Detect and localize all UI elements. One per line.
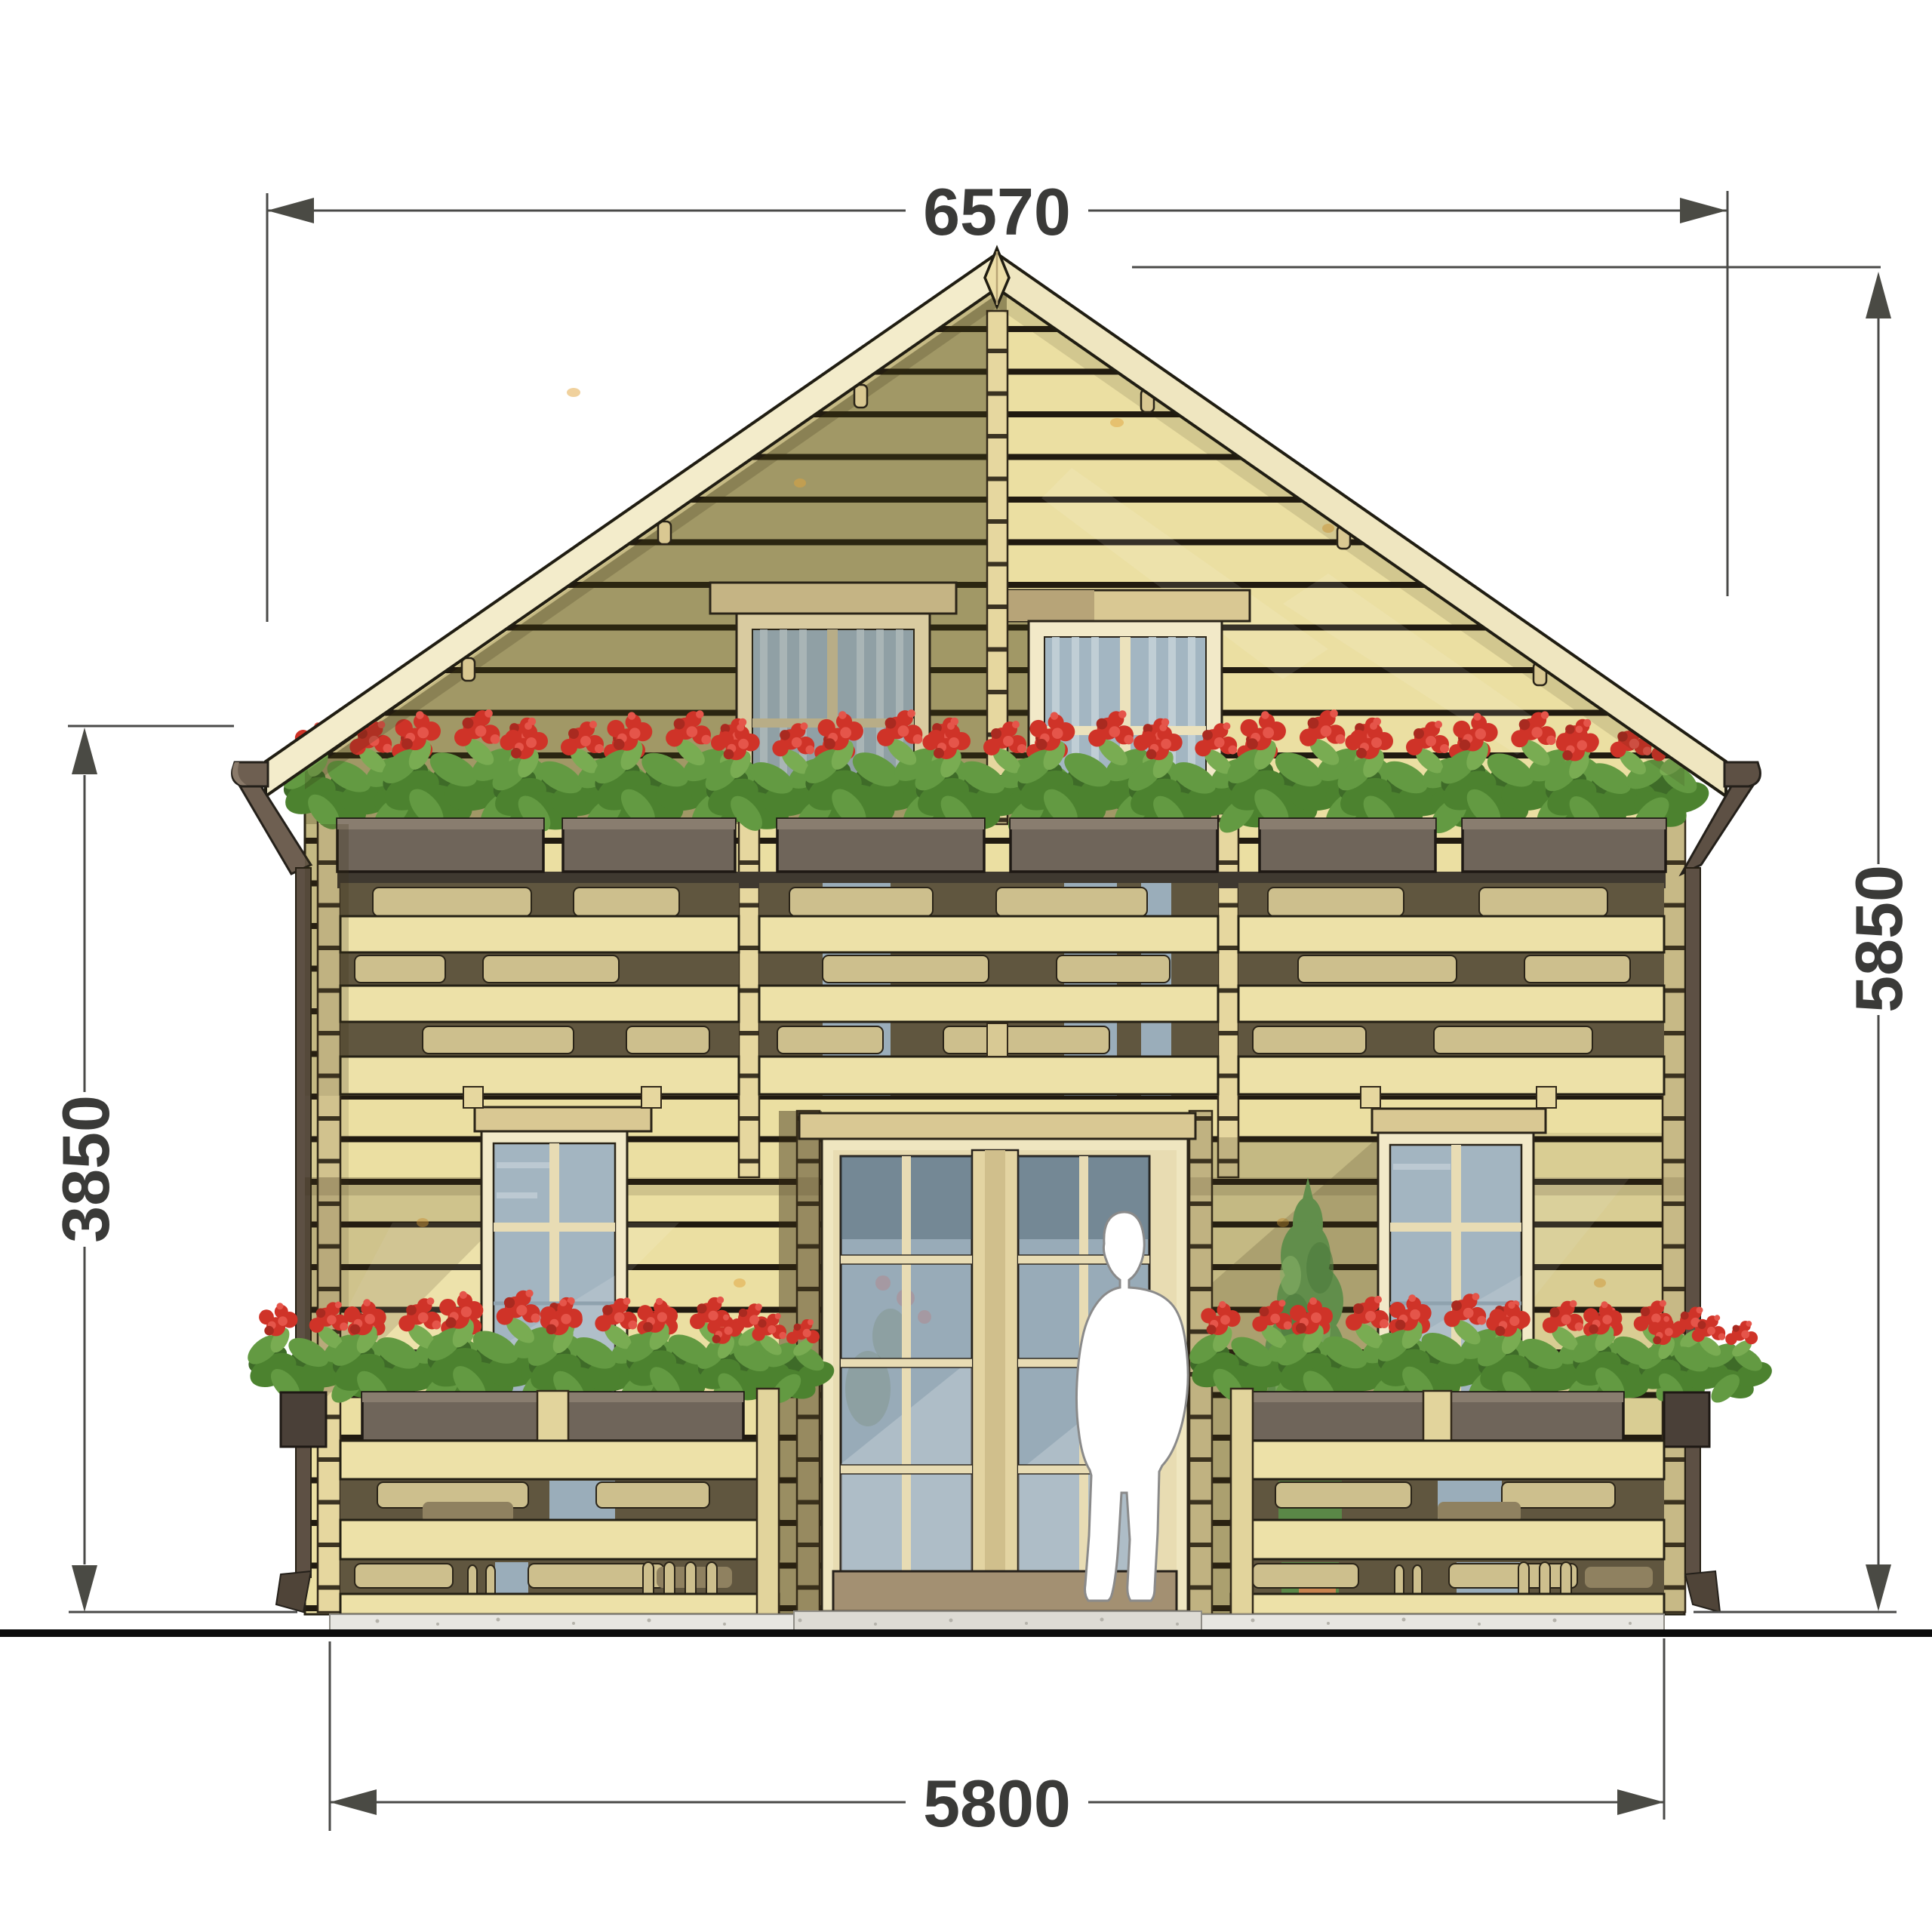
svg-text:3850: 3850 xyxy=(48,1095,123,1243)
svg-text:6570: 6570 xyxy=(923,174,1071,249)
svg-text:5800: 5800 xyxy=(923,1766,1071,1841)
svg-text:5850: 5850 xyxy=(1841,865,1916,1013)
